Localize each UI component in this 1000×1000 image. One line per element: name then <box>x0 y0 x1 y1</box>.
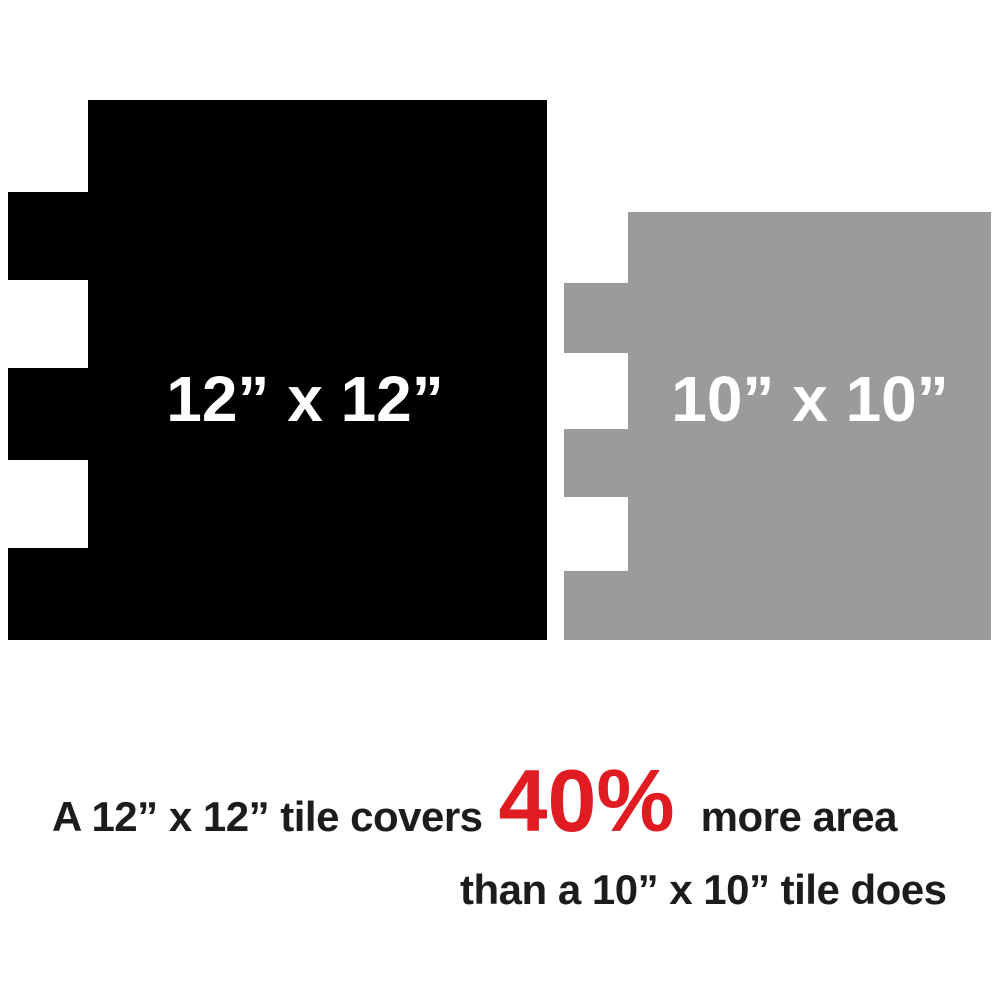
large-tile-tab-bottom <box>8 548 89 640</box>
large-tile-tab-middle <box>8 368 89 460</box>
caption-line1-suffix: more area <box>701 796 897 838</box>
caption-percentage-highlight: 40% <box>499 757 675 845</box>
caption-line2: than a 10” x 10” tile does <box>460 869 947 911</box>
large-tile-tab-top <box>8 192 89 280</box>
large-tile-size-label: 12” x 12” <box>166 367 444 431</box>
small-tile-tab-top <box>564 283 629 353</box>
small-tile-tab-middle <box>564 429 629 497</box>
caption-line1: A 12” x 12” tile covers 40% more area <box>52 757 897 845</box>
caption-line1-prefix: A 12” x 12” tile covers <box>52 796 483 838</box>
small-tile-tab-bottom <box>564 571 629 640</box>
small-tile-size-label: 10” x 10” <box>671 367 949 431</box>
infographic-canvas: 12” x 12” 10” x 10” A 12” x 12” tile cov… <box>0 0 1000 1000</box>
